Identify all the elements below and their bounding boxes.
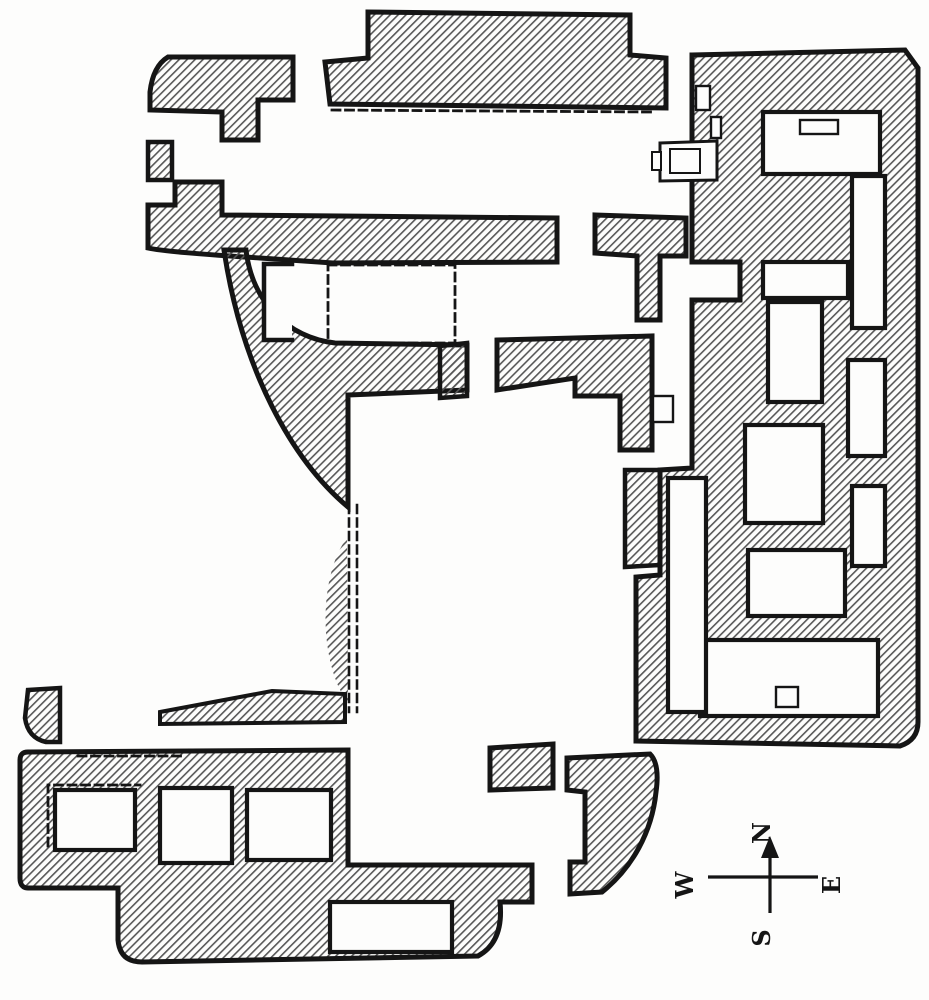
south-room-3	[247, 790, 331, 860]
south-corner-fragment	[25, 688, 60, 742]
east-corridor-mid	[852, 486, 885, 566]
hearth-outer	[660, 141, 717, 181]
wall-niche-a	[711, 117, 721, 138]
south-room-2	[160, 788, 232, 863]
central-threshold	[653, 396, 673, 422]
west-wall-block	[148, 142, 172, 180]
east-room-5	[748, 550, 845, 616]
compass-label-n: N	[747, 822, 776, 844]
south-room-1	[55, 790, 135, 850]
south-detached-block	[490, 744, 553, 790]
plan-figure: NSWE	[0, 0, 929, 1000]
east-court-bar-wall	[625, 470, 660, 567]
hearth-step	[652, 152, 661, 170]
east-room-3	[848, 360, 885, 456]
wall-niche-b	[696, 86, 710, 110]
ne-room-threshold	[800, 120, 838, 134]
south-room-4	[330, 902, 452, 952]
east-corridor-upper	[852, 176, 885, 328]
compass-label-e: E	[817, 876, 846, 894]
central-t-wall-west-stub	[440, 343, 467, 398]
east-room-4	[745, 425, 823, 523]
east-room-2	[768, 302, 822, 402]
top-hall-north-wall	[325, 12, 666, 108]
floor-plan-svg: NSWE	[0, 0, 929, 1000]
compass-label-s: S	[747, 929, 776, 946]
se-threshold	[776, 687, 798, 707]
east-west-corridor	[668, 478, 706, 712]
compass-label-w: W	[670, 870, 699, 899]
east-room-1	[763, 262, 848, 298]
wedge-slot-room	[264, 264, 292, 340]
